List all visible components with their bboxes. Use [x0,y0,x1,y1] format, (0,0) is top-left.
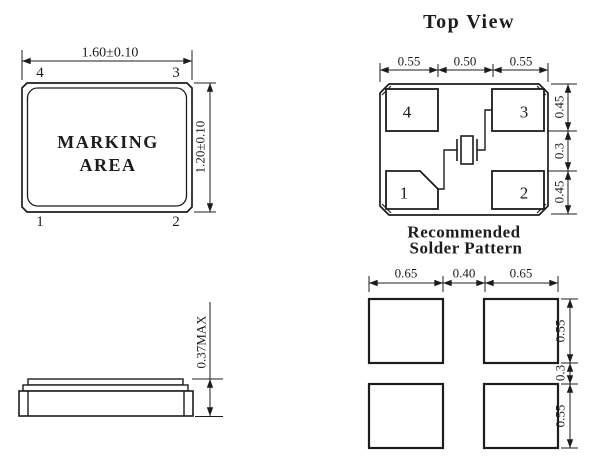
solder-dim-right-bottom: 0.55 [553,405,568,428]
top-view-title: Top View [423,11,515,33]
top-view-height-dimensions: 0.45 0.3 0.45 [547,84,577,214]
marking-area-text-line2: AREA [79,155,136,175]
side-view: 0.37MAX [19,302,223,417]
side-view-height-dimension-label: 0.37MAX [194,315,209,369]
top-view-pad-1-label: 1 [400,184,409,203]
solder-pattern: Recommended Solder Pattern 0.65 0.40 0.6… [369,223,578,449]
solder-pad-bottom-left [369,384,443,448]
side-view-height-dimension: 0.37MAX [192,302,223,417]
front-width-dimension: 1.60±0.10 [22,46,192,81]
side-view-body [19,391,193,416]
front-pin-1-label: 1 [36,214,44,230]
top-view-dim-left: 0.55 [398,54,421,69]
top-view-dim-right-bottom: 0.45 [552,181,567,204]
side-view-lid-mid [23,385,188,391]
solder-dim-right-mid: 0.3 [553,365,568,381]
top-view-pad-2 [492,171,544,209]
front-width-dimension-label: 1.60±0.10 [82,46,139,61]
front-height-dimension: 1.20±0.10 [193,83,217,212]
top-view-width-dimensions: 0.55 0.50 0.55 [380,54,548,83]
solder-pattern-title-line2: Solder Pattern [410,239,523,258]
drawing-canvas: 1.60±0.10 4 3 1 2 MARKING AREA 1.20±0.10… [0,0,600,461]
side-view-lid-top [28,379,183,385]
solder-dim-right-top: 0.55 [553,320,568,343]
front-pin-4-label: 4 [36,65,44,81]
top-view: Top View 0.55 0.50 0.55 4 3 1 2 [380,11,577,215]
front-pin-3-label: 3 [172,65,180,81]
top-view-pad-3-label: 3 [520,103,529,122]
solder-dim-right: 0.65 [510,266,533,281]
front-view: 1.60±0.10 4 3 1 2 MARKING AREA 1.20±0.10 [22,46,216,231]
top-view-pad-4 [386,89,438,131]
solder-dim-mid: 0.40 [453,266,476,281]
front-height-dimension-label: 1.20±0.10 [193,121,208,174]
solder-pad-top-right [484,299,558,363]
top-view-pad-3 [492,89,544,131]
front-pin-2-label: 2 [172,214,180,230]
solder-height-dimensions: 0.55 0.3 0.55 [553,299,579,448]
top-view-dim-mid: 0.50 [454,54,477,69]
top-view-dim-right-top: 0.45 [552,96,567,119]
solder-width-dimensions: 0.65 0.40 0.65 [369,266,558,293]
marking-area-text-line1: MARKING [57,132,159,152]
solder-pad-bottom-right [484,384,558,448]
top-view-pad-4-label: 4 [403,103,412,122]
top-view-dim-right-mid: 0.3 [552,143,567,159]
solder-dim-left: 0.65 [395,266,418,281]
top-view-dim-right: 0.55 [510,54,533,69]
solder-pad-top-left [369,299,443,363]
top-view-pad-2-label: 2 [520,184,529,203]
technical-drawing: 1.60±0.10 4 3 1 2 MARKING AREA 1.20±0.10… [0,0,600,461]
